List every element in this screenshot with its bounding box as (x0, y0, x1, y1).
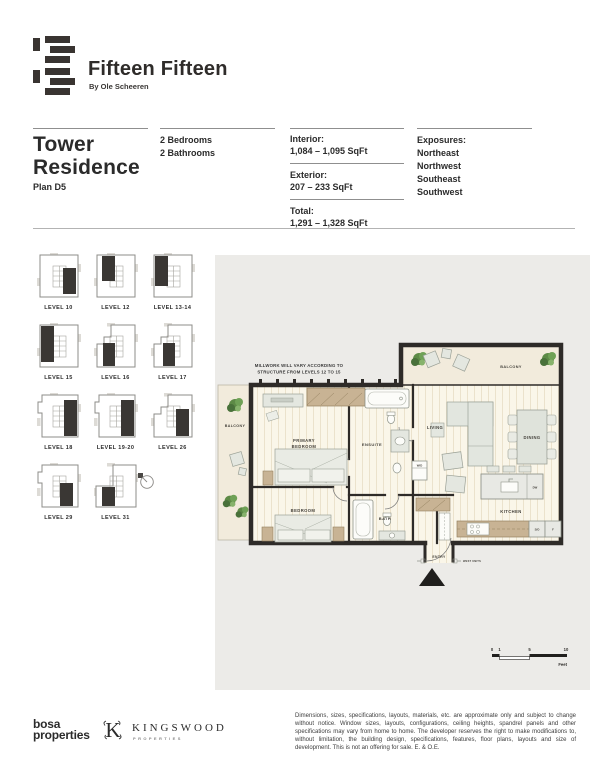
primary-bedroom-label-line2: BEDROOM (292, 444, 317, 449)
level-thumbnail: LEVEL 26 (144, 392, 201, 462)
bosa-properties-logo: bosa properties (33, 719, 90, 740)
level-thumbnail: LEVEL 18 (30, 392, 87, 462)
residence-title: Tower Residence (33, 133, 140, 179)
north-arrow-icon (137, 472, 155, 490)
plan-number: Plan D5 (33, 182, 66, 192)
level-label: LEVEL 31 (101, 515, 129, 521)
level-label: LEVEL 13-14 (154, 305, 192, 311)
bath-label: BATH (379, 516, 391, 521)
balcony-left-label: BALCONY (225, 424, 246, 428)
level-thumbnail: LEVEL 17 (144, 322, 201, 392)
divider (290, 163, 404, 164)
divider (290, 199, 404, 200)
floorplate-diagram (36, 252, 82, 302)
exposures-label: Exposures: (417, 134, 466, 147)
level-thumbnail: LEVEL 29 (30, 462, 87, 532)
level-thumbnail: LEVEL 19-20 (87, 392, 144, 462)
balcony-top-label: BALCONY (500, 365, 522, 369)
level-label: LEVEL 18 (44, 445, 72, 451)
west-units-label: WEST UNITS (463, 559, 481, 563)
balcony-top (401, 345, 561, 385)
scale-unit-label: Feet (558, 662, 567, 667)
fifteen-fifteen-logo-mark (33, 36, 77, 96)
level-label: LEVEL 19-20 (97, 445, 135, 451)
millwork-note-line2: STRUCTURE FROM LEVELS 12 TO 15 (257, 370, 341, 375)
kingswood-wordmark: KINGSWOOD (132, 722, 227, 734)
level-label: LEVEL 10 (44, 305, 72, 311)
bed-bath-info: 2 Bedrooms 2 Bathrooms (160, 134, 215, 160)
divider (160, 128, 275, 129)
brand-title: Fifteen Fifteen (88, 58, 228, 81)
area-summary: Interior: 1,084 – 1,095 SqFt Exterior: 2… (290, 133, 404, 229)
floorplate-diagram (93, 462, 139, 512)
wd-tag: W/D (417, 464, 422, 468)
level-thumbnail: LEVEL 31 (87, 462, 144, 532)
level-thumbnail: LEVEL 10 (30, 252, 87, 322)
floorplate-diagram (36, 322, 82, 372)
bedroom-label: BEDROOM (291, 508, 316, 513)
living-label: LIVING (427, 425, 443, 430)
scale-tick-10: 10 (564, 647, 569, 652)
kingswood-monogram-icon: K (100, 716, 126, 744)
kingswood-sub-wordmark: PROPERTIES (133, 736, 183, 741)
brand-subtitle: By Ole Scheeren (89, 82, 149, 91)
floorplate-diagram (150, 392, 196, 442)
dining-label: DINING (523, 435, 540, 440)
fridge-tag: F (552, 528, 554, 532)
legal-disclaimer: Dimensions, sizes, specifications, layou… (295, 712, 576, 752)
entry-label: ENTRY (432, 555, 446, 559)
exposures-list: Exposures: Northeast Northwest Southeast… (417, 134, 466, 199)
bathrooms-count: 2 Bathrooms (160, 147, 215, 160)
level-thumbnail: LEVEL 12 (87, 252, 144, 322)
bedrooms-count: 2 Bedrooms (160, 134, 215, 147)
dishwasher-tag: DW (533, 486, 538, 490)
stove-oven-tag: S/O (535, 528, 541, 532)
level-thumbnail: LEVEL 13-14 (144, 252, 201, 322)
level-thumbnail: LEVEL 15 (30, 322, 87, 392)
primary-bedroom-label-line1: PRIMARY (293, 438, 315, 443)
level-label: LEVEL 29 (44, 515, 72, 521)
level-label: LEVEL 15 (44, 375, 72, 381)
interior-area: Interior: 1,084 – 1,095 SqFt (290, 133, 404, 157)
millwork-note-line1: MILLWORK WILL VARY ACCORDING TO (255, 363, 344, 368)
divider (33, 128, 148, 129)
floorplate-diagram (36, 392, 82, 442)
exposure-item: Southeast (417, 173, 466, 186)
exterior-area: Exterior: 207 – 233 SqFt (290, 169, 404, 193)
exposure-item: Southwest (417, 186, 466, 199)
level-label: LEVEL 26 (158, 445, 186, 451)
levels-grid: LEVEL 10 LEVEL 12 (30, 252, 202, 532)
residence-title-line1: Tower (33, 133, 140, 156)
divider (417, 128, 532, 129)
kitchen-label: KITCHEN (500, 509, 521, 514)
floorplate-diagram (93, 252, 139, 302)
floorplate-diagram (36, 462, 82, 512)
exposure-item: Northeast (417, 147, 466, 160)
level-label: LEVEL 17 (158, 375, 186, 381)
floorplate-diagram (93, 392, 139, 442)
level-label: LEVEL 16 (101, 375, 129, 381)
divider (290, 128, 404, 129)
balcony-left (218, 385, 251, 540)
ensuite-label: ENSUITE (362, 442, 382, 447)
exposure-item: Northwest (417, 160, 466, 173)
floorplate-diagram (93, 322, 139, 372)
washer-dryer: W/D (412, 461, 427, 480)
residence-title-line2: Residence (33, 156, 140, 179)
level-label: LEVEL 12 (101, 305, 129, 311)
level-thumbnail: LEVEL 16 (87, 322, 144, 392)
floor-plan: MILLWORK WILL VARY ACCORDING TO STRUCTUR… (215, 255, 590, 690)
floorplate-diagram (150, 322, 196, 372)
total-area: Total: 1,291 – 1,328 SqFt (290, 205, 404, 229)
floorplate-diagram (150, 252, 196, 302)
